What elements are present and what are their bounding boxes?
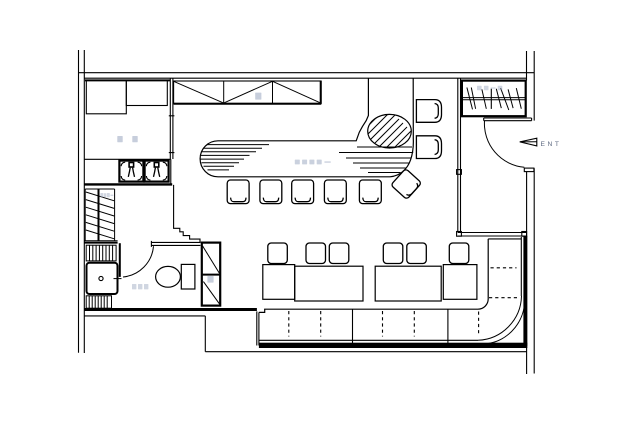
svg-text:ENT: ENT [541, 141, 562, 148]
